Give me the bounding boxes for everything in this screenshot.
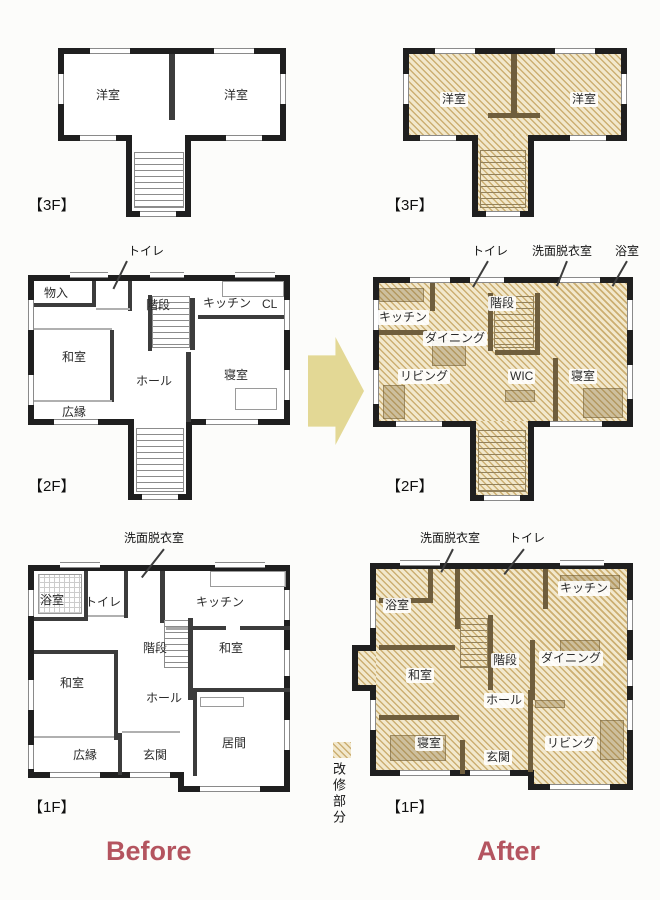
floor-label-1f-after: 【1F】 — [386, 799, 434, 816]
room-label-japanese-room: 和室 — [406, 668, 434, 683]
room-label-western-room: 洋室 — [570, 92, 598, 107]
wall-segment — [92, 281, 96, 305]
window-marker — [400, 560, 440, 566]
wall-segment — [193, 688, 290, 692]
detail-line — [34, 328, 112, 330]
room-label-japanese-room: 和室 — [219, 641, 243, 656]
stair-treads — [460, 618, 488, 668]
wall-segment — [34, 617, 88, 621]
room-label-western-room: 洋室 — [224, 88, 248, 103]
room-label-dining: ダイニング — [423, 331, 487, 346]
floor-label-2f-after: 【2F】 — [386, 478, 434, 495]
floor-label-3f-after: 【3F】 — [386, 197, 434, 214]
room-label-toilet: トイレ — [85, 595, 121, 610]
room-label-kitchen: キッチン — [377, 310, 429, 325]
furniture-block — [600, 720, 624, 760]
window-marker — [206, 419, 258, 425]
window-marker — [70, 272, 108, 278]
window-marker — [550, 421, 602, 427]
room-label-veranda: 広縁 — [73, 748, 97, 763]
window-marker — [130, 772, 170, 778]
wall-segment — [553, 358, 558, 422]
room-label-western-room: 洋室 — [440, 92, 468, 107]
room-label-kitchen: キッチン — [196, 595, 244, 610]
room-label-living: リビング — [398, 369, 450, 384]
stair-treads — [164, 620, 190, 668]
room-label-bedroom: 寝室 — [415, 736, 443, 751]
room-label-entrance: 玄関 — [143, 748, 167, 763]
furniture-outline — [200, 697, 244, 707]
room-label-stairs: 階段 — [143, 641, 167, 656]
window-marker — [284, 370, 290, 400]
detail-line — [34, 736, 114, 738]
window-marker — [410, 277, 450, 283]
window-marker — [420, 135, 456, 141]
room-label-living-room: 居間 — [222, 736, 246, 751]
room-label-veranda: 広縁 — [62, 405, 86, 420]
window-marker — [80, 135, 116, 141]
detail-line — [88, 615, 124, 617]
window-marker — [555, 48, 595, 54]
room-label-japanese-room: 和室 — [62, 350, 86, 365]
window-marker — [373, 370, 379, 404]
wall-segment — [528, 690, 533, 772]
room-label-storage: 物入 — [44, 286, 68, 301]
window-marker — [215, 562, 265, 568]
window-marker — [58, 74, 64, 104]
stair-treads — [480, 150, 526, 208]
room-label-dining: ダイニング — [539, 651, 603, 666]
window-marker — [28, 590, 34, 616]
floor-label-2f-before: 【2F】 — [28, 478, 76, 495]
window-marker — [284, 650, 290, 676]
callout-toilet: トイレ — [472, 244, 508, 258]
window-marker — [28, 375, 34, 405]
window-marker — [28, 300, 34, 330]
window-marker — [214, 48, 254, 54]
room-label-kitchen: キッチン — [203, 296, 251, 311]
window-marker — [150, 272, 184, 278]
detail-line — [122, 731, 180, 733]
window-marker — [621, 74, 627, 104]
wall-segment — [34, 303, 96, 307]
wall-segment — [535, 293, 540, 351]
wall-segment — [430, 283, 435, 311]
wall-segment — [379, 645, 455, 650]
room-label-bedroom: 寝室 — [224, 368, 248, 383]
side-bay-1f-after — [352, 645, 376, 691]
stair-treads — [478, 430, 526, 492]
room-label-stairs: 階段 — [146, 298, 170, 313]
window-marker — [550, 784, 610, 790]
detail-line — [34, 400, 112, 402]
furniture-outline — [235, 388, 277, 410]
window-marker — [140, 211, 176, 217]
window-marker — [560, 277, 600, 283]
wall-segment — [198, 315, 290, 319]
window-marker — [627, 700, 633, 730]
room-label-bathroom: 浴室 — [383, 598, 411, 613]
window-marker — [284, 720, 290, 750]
caption-after: After — [477, 836, 540, 867]
wall-segment — [543, 569, 548, 609]
wall-segment — [169, 54, 175, 120]
window-marker — [60, 562, 100, 568]
window-marker — [28, 680, 34, 710]
window-marker — [280, 74, 286, 104]
window-marker — [484, 495, 520, 501]
window-marker — [142, 494, 178, 500]
wall-segment — [379, 330, 427, 335]
wall-segment — [240, 626, 290, 630]
room-label-closet: CL — [262, 297, 277, 312]
window-marker — [284, 300, 290, 330]
callout-toilet: トイレ — [128, 244, 164, 258]
wall-segment — [190, 298, 195, 350]
wall-segment — [34, 650, 118, 654]
wall-segment — [110, 330, 114, 402]
stair-treads — [134, 152, 184, 208]
before-after-floorplan-figure: 洋室 洋室 【3F】 洋室 洋室 【3F】 トイレ 物入 階段 キッチン CL … — [0, 0, 660, 900]
window-marker — [627, 365, 633, 399]
callout-washroom: 洗面脱衣室 — [420, 531, 480, 545]
window-marker — [470, 770, 510, 776]
room-label-japanese-room: 和室 — [60, 676, 84, 691]
room-label-stairs: 階段 — [488, 296, 516, 311]
furniture-block — [379, 288, 424, 302]
room-label-hall: ホール — [146, 691, 182, 706]
furniture-block — [383, 385, 405, 419]
kitchen-counter — [222, 281, 284, 297]
stair-treads — [136, 428, 184, 492]
room-label-hall: ホール — [484, 693, 524, 708]
window-marker — [50, 772, 100, 778]
window-marker — [403, 74, 409, 104]
before-to-after-arrow-icon — [308, 337, 364, 445]
room-label-stairs: 階段 — [491, 653, 519, 668]
callout-bathroom: 浴室 — [615, 244, 639, 258]
window-marker — [400, 770, 450, 776]
room-label-entrance: 玄関 — [484, 750, 512, 765]
detail-line — [96, 308, 130, 310]
window-marker — [28, 745, 34, 769]
window-marker — [90, 48, 130, 54]
window-marker — [486, 211, 520, 217]
window-marker — [370, 700, 376, 730]
wall-segment — [118, 733, 122, 775]
wall-segment — [460, 740, 465, 774]
wall-segment — [379, 715, 459, 720]
callout-washroom: 洗面脱衣室 — [532, 244, 592, 258]
wall-segment — [128, 281, 132, 311]
floor-label-3f-before: 【3F】 — [28, 197, 76, 214]
furniture-block — [535, 700, 565, 708]
callout-washroom: 洗面脱衣室 — [124, 531, 184, 545]
legend-renovation-label: 改修部分 — [329, 762, 348, 826]
wall-segment — [160, 571, 165, 623]
window-marker — [560, 560, 604, 566]
wall-segment — [193, 692, 197, 776]
furniture-block — [505, 390, 535, 402]
room-label-living: リビング — [545, 736, 597, 751]
room-label-hall: ホール — [136, 374, 172, 389]
callout-toilet: トイレ — [509, 531, 545, 545]
window-marker — [435, 48, 475, 54]
window-marker — [570, 135, 606, 141]
room-label-wic: WIC — [508, 369, 535, 384]
room-label-bedroom: 寝室 — [569, 369, 597, 384]
room-label-kitchen: キッチン — [558, 581, 610, 596]
wall-segment — [511, 54, 517, 116]
window-marker — [226, 135, 262, 141]
floor-label-1f-before: 【1F】 — [28, 799, 76, 816]
window-marker — [284, 590, 290, 620]
wall-segment — [495, 350, 540, 355]
window-marker — [627, 600, 633, 630]
wall-segment — [124, 571, 128, 618]
legend-renovation-swatch — [333, 742, 351, 758]
wall-segment — [114, 650, 118, 740]
room-label-western-room: 洋室 — [96, 88, 120, 103]
wall-segment — [488, 113, 540, 118]
window-marker — [627, 660, 633, 686]
window-marker — [370, 600, 376, 628]
room-label-bathroom: 浴室 — [40, 593, 64, 608]
window-marker — [627, 300, 633, 330]
window-marker — [396, 421, 442, 427]
window-marker — [235, 272, 275, 278]
wall-segment — [186, 352, 191, 422]
kitchen-counter — [210, 571, 286, 587]
window-marker — [200, 786, 260, 792]
caption-before: Before — [106, 836, 192, 867]
furniture-block — [583, 388, 623, 418]
